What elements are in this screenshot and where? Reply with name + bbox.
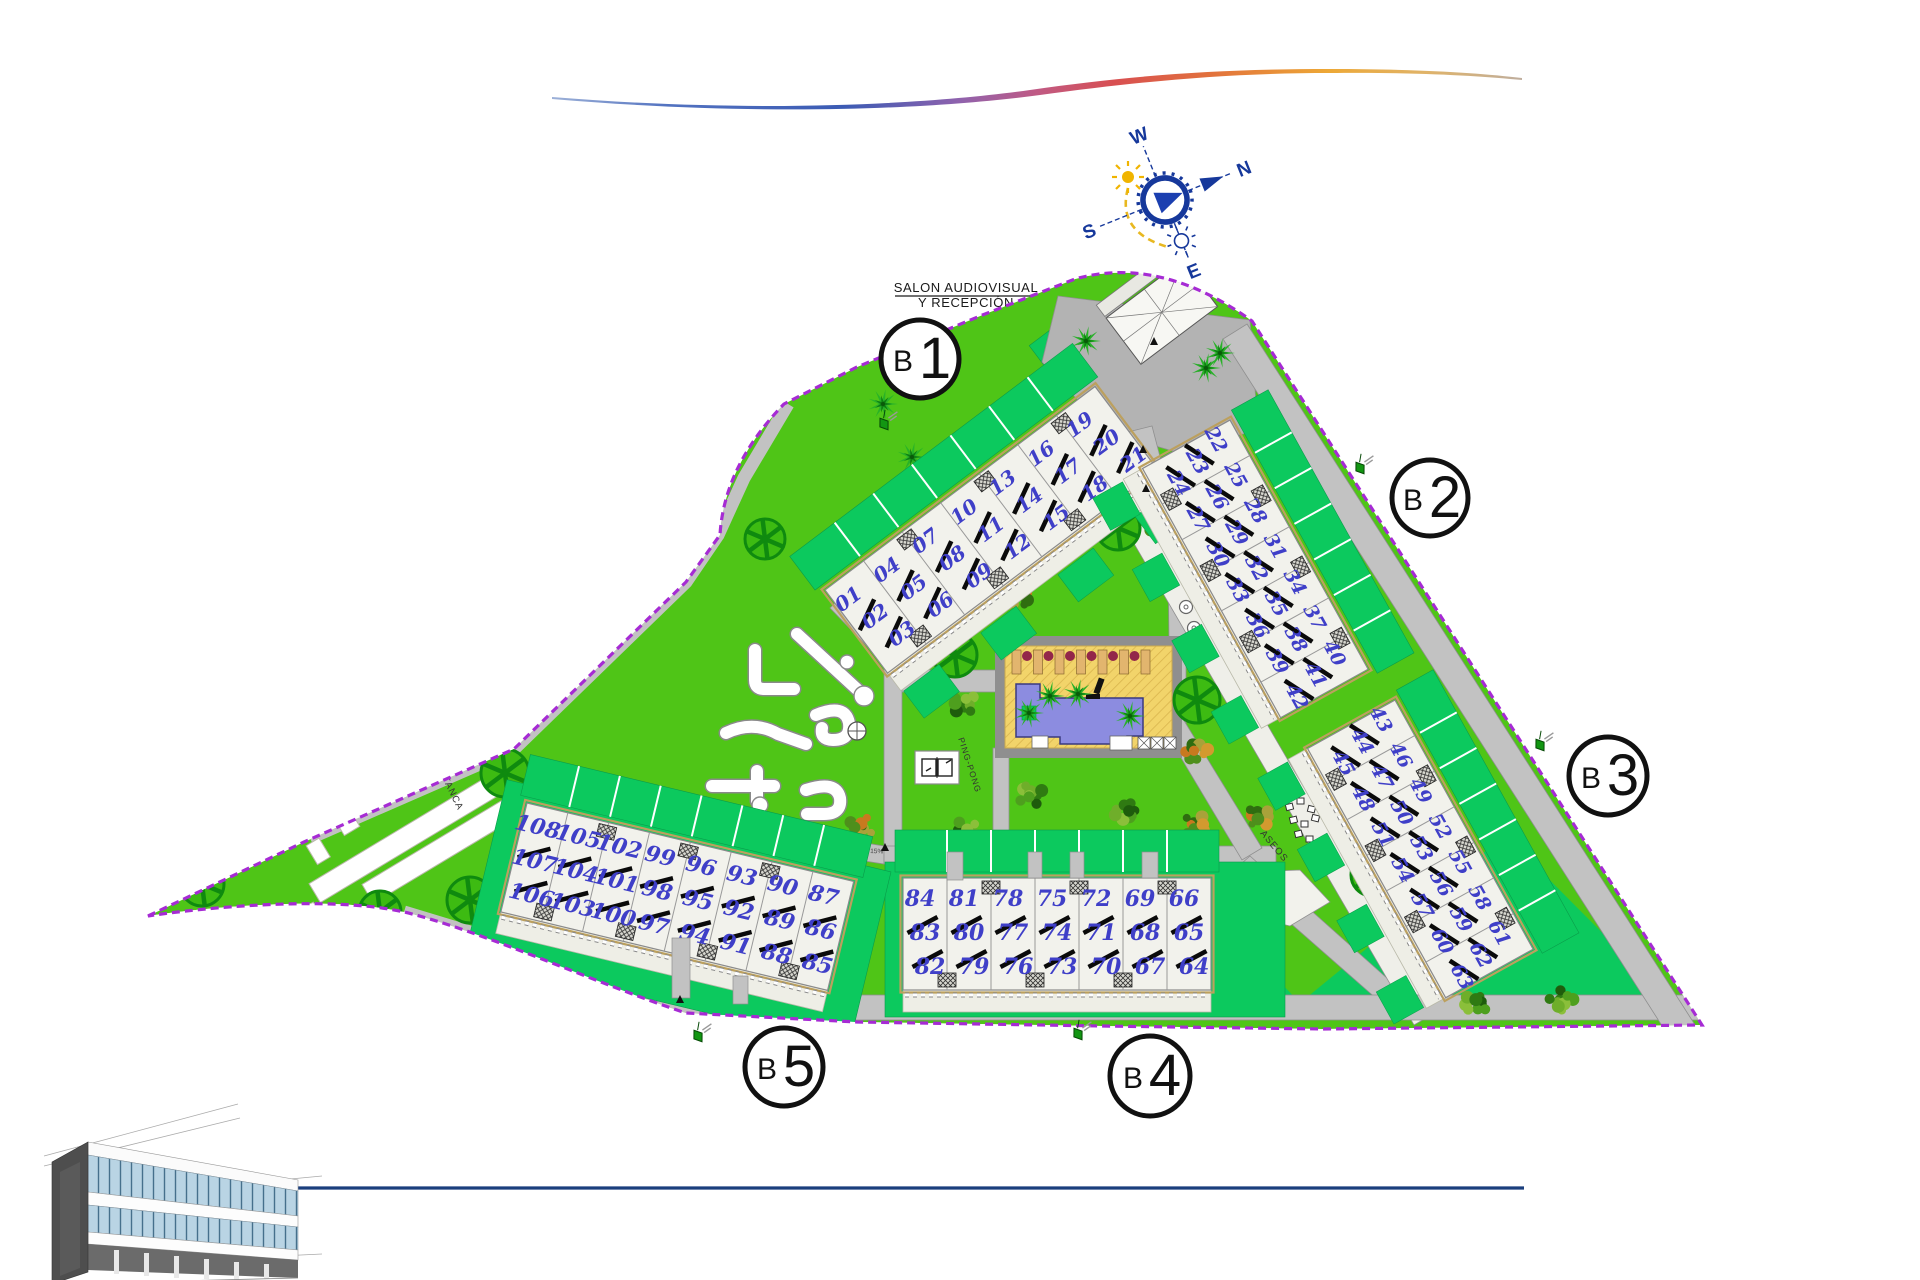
tree-icon [359, 891, 401, 933]
compass-label-e: E [1184, 260, 1204, 284]
block-letter: B [757, 1053, 777, 1086]
block-label-B3: B3 [1569, 737, 1647, 815]
unit-67: 67 [1135, 954, 1166, 980]
block-letter: B [1403, 484, 1423, 517]
block-digit: 1 [919, 326, 951, 391]
unit-80: 80 [953, 920, 985, 946]
compass-east-sun-icon [1162, 221, 1201, 260]
annotation-line1: SALON AUDIOVISUAL [894, 280, 1039, 295]
compass-label-n: N [1234, 157, 1255, 182]
block-label-B2: B2 [1392, 460, 1468, 536]
petanca-court [315, 925, 350, 952]
unit-74: 74 [1042, 920, 1073, 946]
unit-76: 76 [1003, 954, 1034, 980]
umbrella [1130, 651, 1140, 661]
access-marker [1530, 726, 1559, 754]
pool-area [995, 636, 1182, 758]
unit-84: 84 [904, 886, 936, 912]
block-label-B4: B4 [1110, 1036, 1190, 1116]
umbrella [1044, 651, 1054, 661]
petanca-court [275, 902, 319, 936]
unit-71: 71 [1086, 920, 1117, 946]
sunbed [1077, 650, 1086, 674]
unit-66: 66 [1169, 886, 1200, 912]
pool-steps [1032, 736, 1048, 748]
unit-77: 77 [998, 920, 1029, 946]
sunbed [1034, 650, 1043, 674]
site-plan-page: N S W E SALON AUDIOVISUAL Y RECEPCIÓN PE… [0, 0, 1920, 1280]
unit-68: 68 [1130, 920, 1161, 946]
unit-65: 65 [1174, 920, 1205, 946]
sunbed [1141, 650, 1150, 674]
play-equipment [1294, 830, 1302, 838]
block-digit: 2 [1429, 465, 1461, 530]
umbrella [1022, 651, 1032, 661]
unit-78: 78 [993, 886, 1024, 912]
unit-72: 72 [1081, 886, 1112, 912]
sunbed [1098, 650, 1107, 674]
sunbed [1012, 650, 1021, 674]
umbrella [1065, 651, 1075, 661]
block-letter: B [893, 345, 913, 378]
gym-station [1180, 601, 1193, 614]
pool-steps [1110, 736, 1132, 750]
site-plan-canvas: N S W E SALON AUDIOVISUAL Y RECEPCIÓN PE… [0, 0, 1920, 1280]
unit-70: 70 [1091, 954, 1122, 980]
umbrella [1087, 651, 1097, 661]
unit-69: 69 [1125, 886, 1156, 912]
decorative-swoosh [552, 69, 1522, 109]
path-stub [947, 852, 963, 880]
sunbed [1055, 650, 1064, 674]
tree-icon [745, 519, 785, 559]
access-marker [1350, 449, 1379, 477]
unit-64: 64 [1179, 954, 1210, 980]
block-digit: 3 [1607, 743, 1639, 808]
play-equipment [1289, 816, 1297, 824]
block-letter: B [1581, 762, 1601, 795]
play-equipment [1311, 814, 1319, 822]
block-label-B1: B1 [881, 320, 959, 398]
sunbed [1120, 650, 1129, 674]
block-digit: 4 [1149, 1043, 1181, 1108]
play-equipment [1297, 798, 1304, 804]
block-label-B5: B5 [745, 1028, 823, 1106]
unit-73: 73 [1047, 954, 1078, 980]
umbrella [1108, 651, 1118, 661]
path-stub [733, 976, 748, 1004]
sun-icon [1112, 161, 1144, 193]
play-equipment [1301, 821, 1308, 827]
unit-75: 75 [1037, 886, 1068, 912]
pingpong-area [915, 751, 959, 784]
block-letter: B [1123, 1062, 1143, 1095]
play-equipment [1306, 836, 1313, 842]
compass-label-w: W [1127, 123, 1152, 149]
tree-icon [1174, 677, 1220, 723]
compass-label-s: S [1080, 220, 1100, 244]
unit-81: 81 [948, 886, 980, 912]
petanca-court [272, 938, 310, 967]
play-wheel [848, 722, 866, 740]
path-stub [672, 938, 690, 998]
unit-83: 83 [909, 920, 941, 946]
path-stub [1142, 852, 1158, 878]
access-marker [688, 1017, 717, 1045]
garden-strip-B4 [895, 830, 1219, 872]
path-stub [1028, 852, 1042, 878]
path-stub [1070, 852, 1084, 878]
unit-79: 79 [959, 954, 990, 980]
block-digit: 5 [783, 1034, 815, 1099]
logo-building [44, 1104, 322, 1280]
unit-82: 82 [914, 954, 946, 980]
